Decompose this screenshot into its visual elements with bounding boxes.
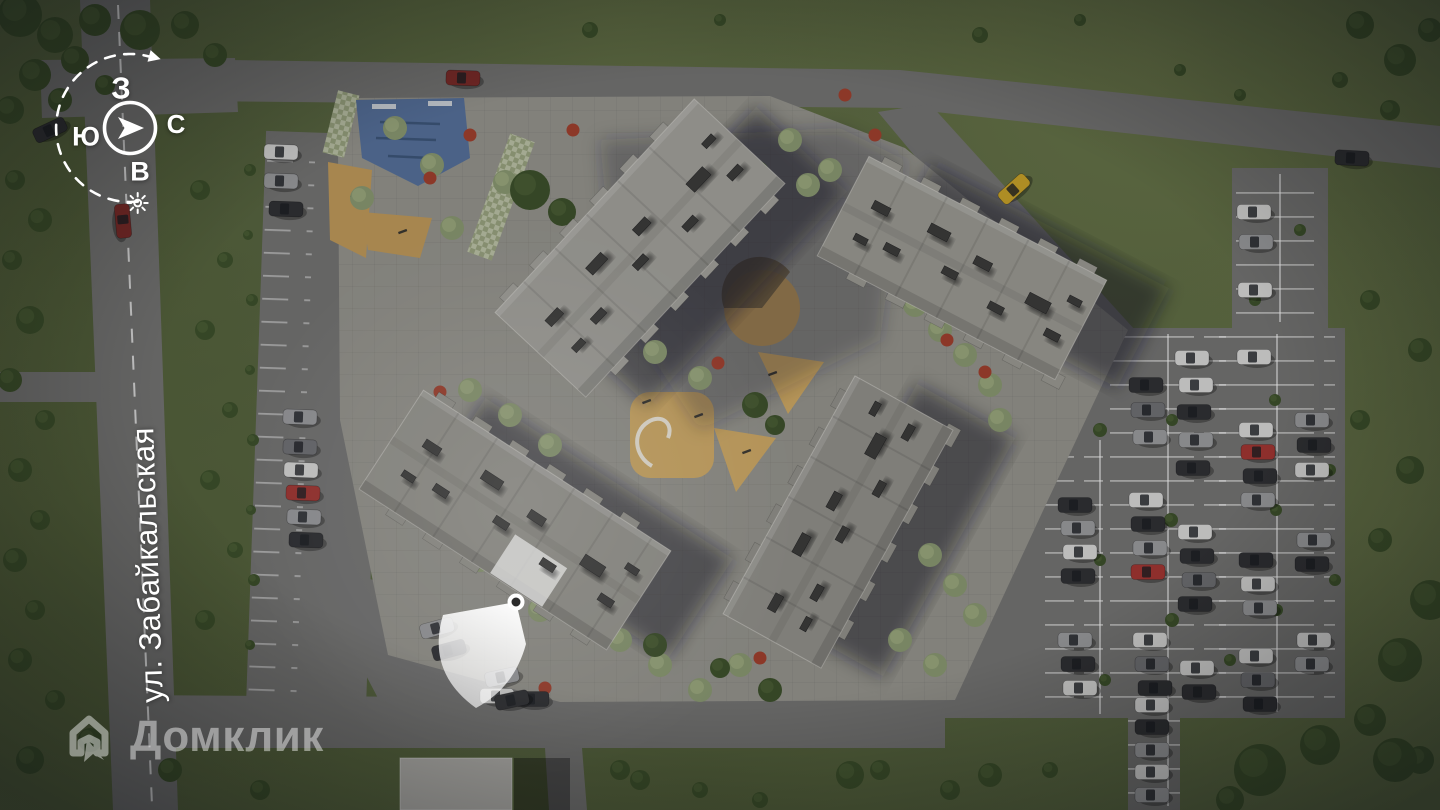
sun-icon — [128, 193, 148, 213]
domclick-house-icon — [60, 708, 118, 766]
compass-label-east: В — [130, 159, 150, 186]
compass-label-north: С — [167, 111, 186, 137]
watermark-brand-text: Домклик — [130, 712, 324, 762]
domclick-watermark: Домклик — [60, 708, 324, 766]
camera-marker[interactable] — [510, 596, 523, 609]
compass-label-south: Ю — [72, 124, 100, 151]
compass-label-west: З — [111, 73, 130, 104]
site-plan-aerial-view: З С Ю В ул. Забайкальская Домклик — [0, 0, 1440, 810]
compass-graphics — [40, 36, 230, 226]
compass-rose: З С Ю В — [40, 36, 230, 226]
route-arrowhead-icon — [148, 50, 163, 65]
